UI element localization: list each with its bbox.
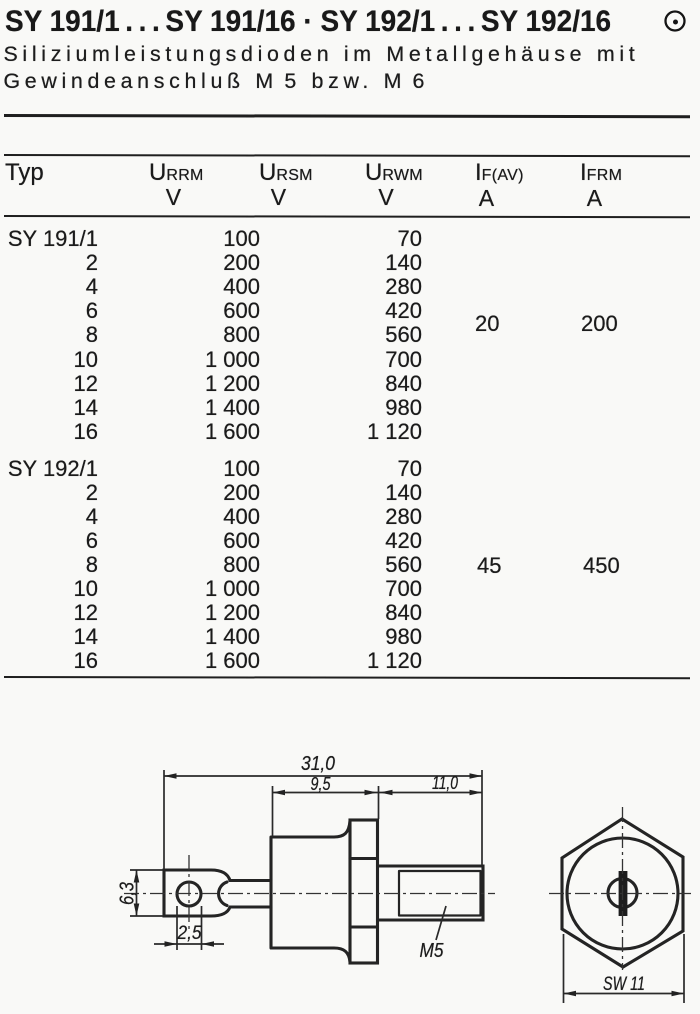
svg-text:31,0: 31,0 [301,753,335,775]
svg-text:9,5: 9,5 [311,774,332,794]
svg-text:6,3: 6,3 [117,882,139,905]
svg-text:M5: M5 [420,940,445,962]
svg-text:11,0: 11,0 [432,773,458,793]
svg-text:SW 11: SW 11 [603,974,645,995]
svg-text:2,5: 2,5 [177,923,202,944]
